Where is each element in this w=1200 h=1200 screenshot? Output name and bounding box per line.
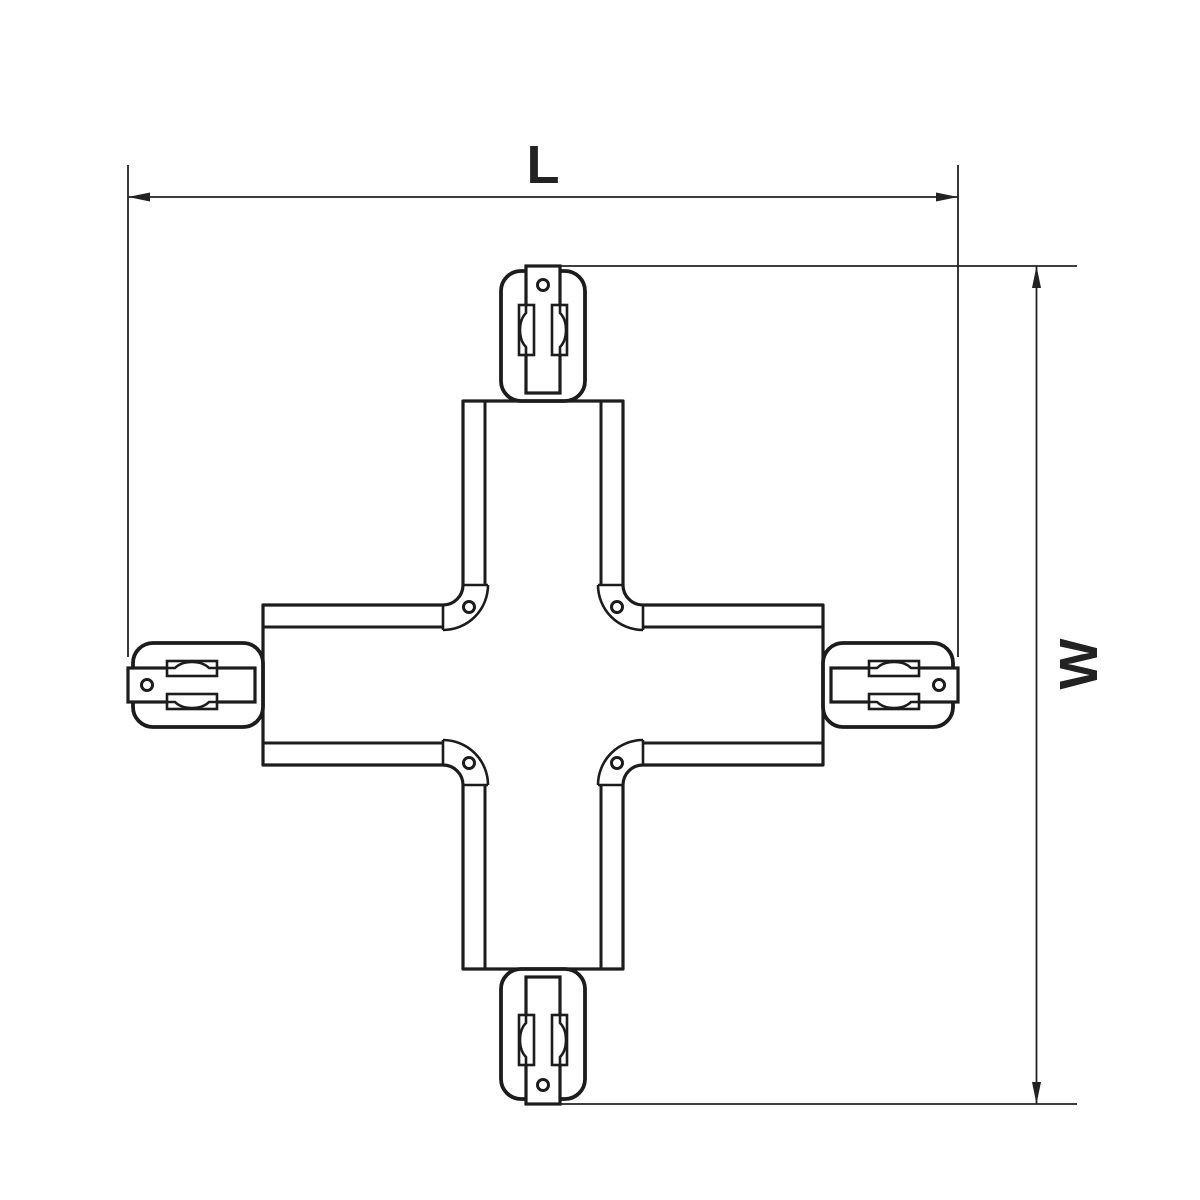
- screw-hole-icon: [612, 758, 623, 769]
- cross-outline: [263, 401, 823, 969]
- arrow-up-icon: [1032, 266, 1041, 288]
- width-label: W: [1049, 638, 1109, 689]
- screw-hole-icon: [464, 758, 475, 769]
- connector-end-right: [823, 643, 958, 727]
- length-label: L: [527, 135, 560, 195]
- connector-end-bottom: [501, 969, 585, 1104]
- connector-end-top: [501, 266, 585, 401]
- drawing-canvas: L W: [0, 0, 1200, 1200]
- arrow-down-icon: [1032, 1082, 1041, 1104]
- cross-body: [128, 266, 958, 1104]
- technical-drawing: L W: [0, 0, 1200, 1200]
- screw-hole-icon: [612, 602, 623, 613]
- arrow-right-icon: [936, 193, 958, 202]
- arrow-left-icon: [128, 193, 150, 202]
- connector-end-left: [128, 643, 263, 727]
- screw-hole-icon: [464, 602, 475, 613]
